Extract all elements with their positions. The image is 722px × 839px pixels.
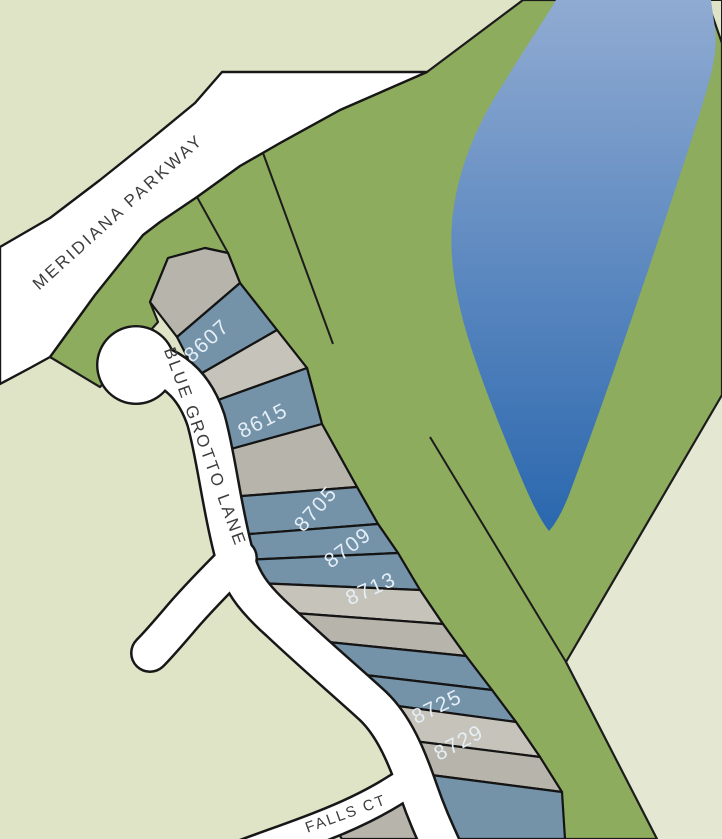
subdivision-plat-map: MERIDIANA PARKWAY BLUE GROTTO LANE FALLS… — [0, 0, 722, 839]
plat-map-canvas: MERIDIANA PARKWAY BLUE GROTTO LANE FALLS… — [0, 0, 722, 839]
